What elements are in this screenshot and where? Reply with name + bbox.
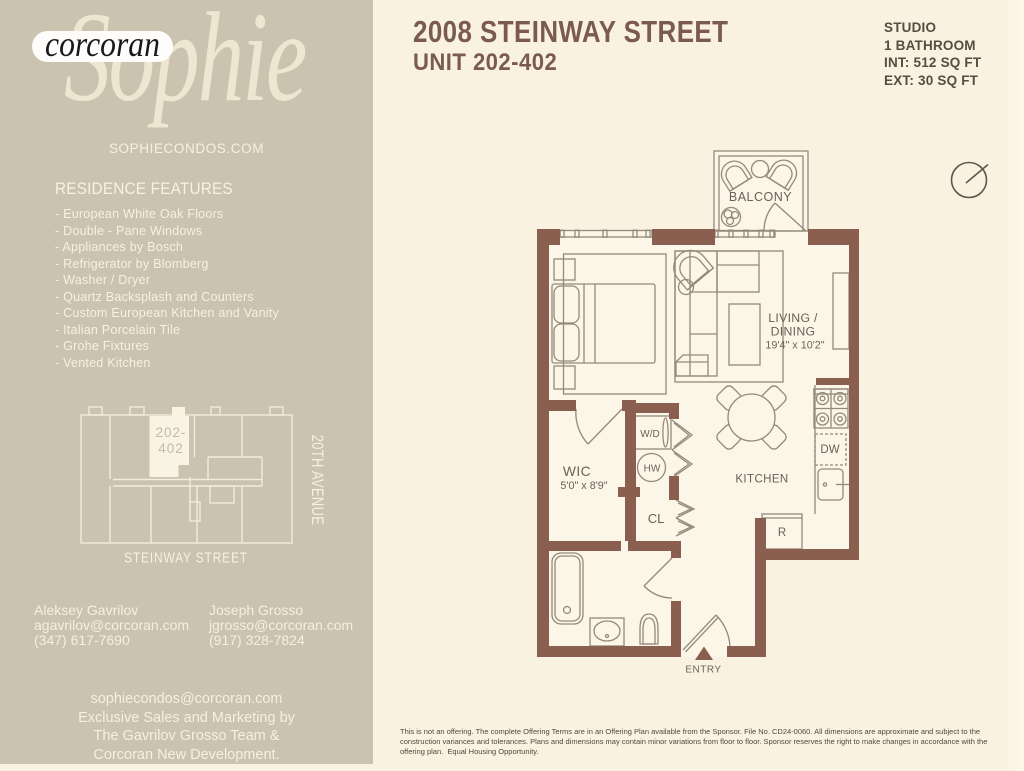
- svg-text:BALCONY: BALCONY: [729, 190, 792, 204]
- svg-text:W/D: W/D: [640, 429, 659, 440]
- svg-text:19'4" x 10'2": 19'4" x 10'2": [765, 340, 824, 352]
- svg-text:5'0" x 8'9": 5'0" x 8'9": [560, 480, 607, 492]
- svg-text:DW: DW: [820, 444, 839, 456]
- svg-text:ENTRY: ENTRY: [685, 665, 721, 676]
- svg-text:WIC: WIC: [563, 464, 591, 479]
- svg-text:STEINWAY STREET: STEINWAY STREET: [124, 549, 248, 566]
- svg-text:20TH AVENUE: 20TH AVENUE: [308, 435, 326, 526]
- svg-text:HW: HW: [644, 464, 661, 475]
- svg-text:CL: CL: [648, 511, 665, 526]
- svg-text:202-: 202-: [155, 425, 186, 440]
- svg-text:LIVING /: LIVING /: [768, 311, 818, 325]
- svg-text:402: 402: [158, 441, 184, 456]
- svg-text:KITCHEN: KITCHEN: [735, 474, 788, 486]
- svg-text:R: R: [778, 527, 786, 539]
- svg-text:DINING: DINING: [771, 325, 816, 339]
